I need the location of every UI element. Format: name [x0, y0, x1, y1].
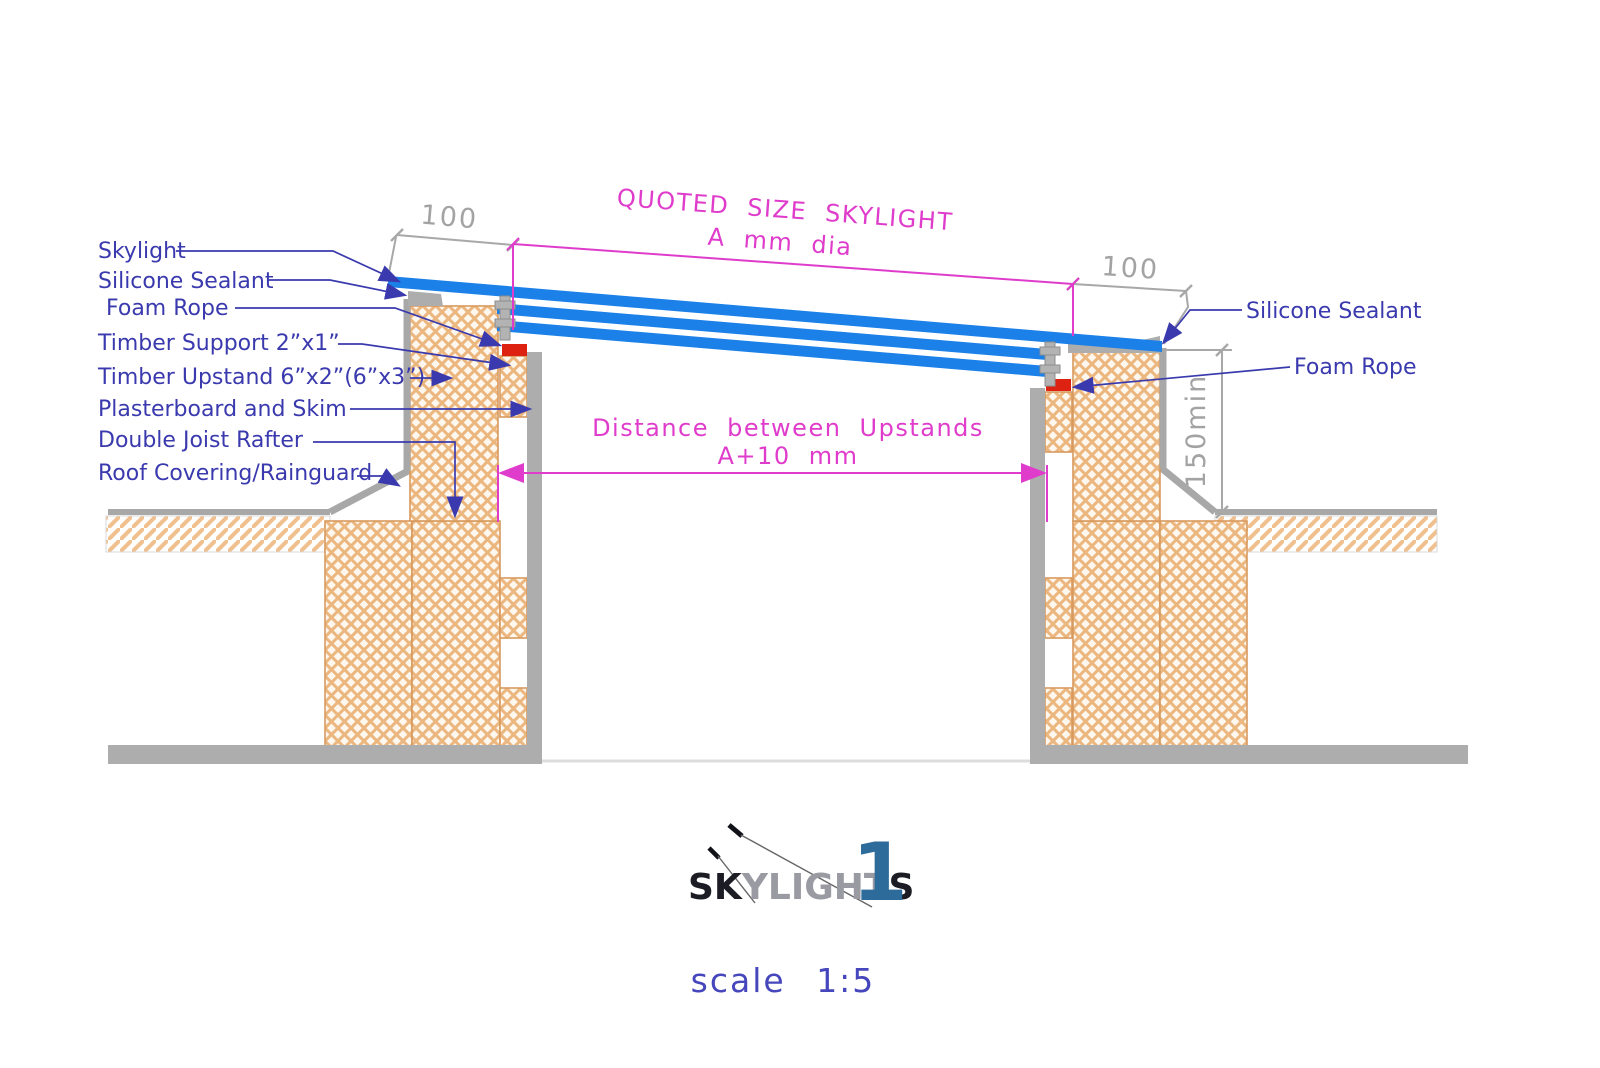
- quoted-size-value: A mm dia: [707, 223, 854, 262]
- double-joist-rafter-right: [1073, 521, 1247, 746]
- label-timber-support: Timber Support 2”x1”: [97, 331, 340, 356]
- scale-note: scale 1:5: [691, 961, 876, 1000]
- label-double-joist-rafter: Double Joist Rafter: [98, 428, 304, 453]
- dimension-distance-between-upstands: Distance between Upstands A+10 mm: [498, 414, 1047, 522]
- dim-text-150min: 150min: [1181, 374, 1212, 488]
- dim-text-100-left: 100: [419, 200, 479, 236]
- label-timber-upstand: Timber Upstand 6”x2”(6”x3”): [97, 365, 425, 390]
- timber-upstand-right: [1073, 352, 1160, 521]
- double-joist-rafter-left: [325, 521, 500, 746]
- dimension-overhang-left: 100: [389, 200, 519, 273]
- dim-text-100-right: 100: [1100, 251, 1160, 286]
- skylight-section-drawing: 100 100 150min QUOTED SIZE SKYLIGHT A mm…: [0, 0, 1600, 1068]
- plasterboard-left: [527, 352, 542, 746]
- leader-silicone-sealant-left: [268, 280, 404, 295]
- skylights1-logo: SKYLIGHTS 1: [688, 825, 914, 919]
- plasterboard-right: [1030, 388, 1045, 746]
- distance-title: Distance between Upstands: [592, 414, 984, 442]
- label-silicone-sealant-left: Silicone Sealant: [98, 269, 274, 294]
- label-foam-rope-left: Foam Rope: [106, 296, 229, 321]
- ceiling-plasterboard: [108, 745, 1468, 764]
- label-plasterboard: Plasterboard and Skim: [98, 397, 347, 422]
- label-silicone-sealant-right: Silicone Sealant: [1246, 299, 1422, 324]
- foam-rope-left: [502, 344, 527, 356]
- timber-support-and-noggins-left: [500, 356, 527, 746]
- timber-support-right: [1045, 392, 1072, 452]
- left-labels: Skylight Silicone Sealant Foam Rope Timb…: [97, 239, 425, 486]
- logo-tick-icon: [709, 848, 719, 858]
- dimension-upstand-height: 150min: [1162, 344, 1232, 518]
- label-skylight: Skylight: [98, 239, 186, 264]
- distance-value: A+10 mm: [718, 442, 859, 470]
- logo-numeral-one: 1: [852, 826, 908, 919]
- timber-support-and-noggins-right: [1045, 392, 1072, 746]
- label-foam-rope-right: Foam Rope: [1294, 355, 1417, 380]
- label-roof-covering: Roof Covering/Rainguard: [98, 461, 372, 486]
- skylight-install-drawing-page: 100 100 150min QUOTED SIZE SKYLIGHT A mm…: [0, 0, 1600, 1068]
- silicone-sealant-left: [408, 291, 443, 306]
- logo-tick-icon: [729, 825, 742, 836]
- timber-upstand-left: [410, 306, 498, 521]
